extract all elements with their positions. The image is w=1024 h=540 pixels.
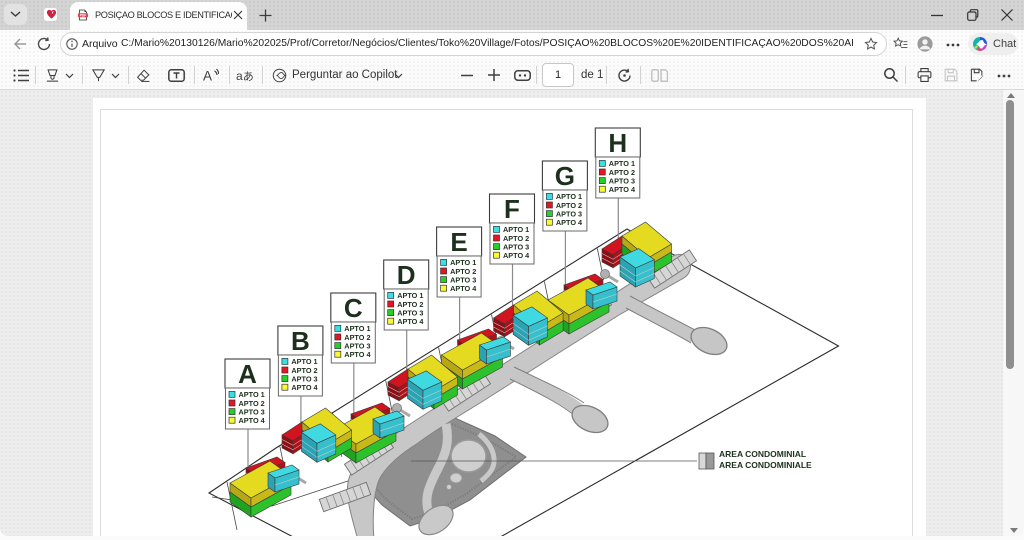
svg-text:APTO 4: APTO 4 xyxy=(503,251,530,260)
svg-text:APTO 4: APTO 4 xyxy=(397,317,424,326)
svg-text:E: E xyxy=(450,227,467,257)
svg-text:AREA CONDOMINIAL: AREA CONDOMINIAL xyxy=(719,449,806,459)
svg-text:C: C xyxy=(344,293,363,323)
svg-text:APTO 4: APTO 4 xyxy=(291,383,318,392)
svg-text:APTO 4: APTO 4 xyxy=(609,185,636,194)
svg-text:APTO 4: APTO 4 xyxy=(556,218,583,227)
svg-text:G: G xyxy=(555,161,575,191)
svg-text:D: D xyxy=(397,260,416,290)
svg-text:A: A xyxy=(203,69,212,83)
svg-text:APTO 4: APTO 4 xyxy=(239,416,266,425)
svg-text:APTO 4: APTO 4 xyxy=(450,284,477,293)
svg-text:PDF: PDF xyxy=(80,14,87,18)
svg-text:AREA CONDOMINIALE: AREA CONDOMINIALE xyxy=(719,460,812,470)
svg-text:F: F xyxy=(504,194,520,224)
svg-text:APTO 4: APTO 4 xyxy=(344,350,371,359)
svg-text:A: A xyxy=(238,359,257,389)
svg-text:B: B xyxy=(291,326,310,356)
svg-text:H: H xyxy=(608,128,627,158)
